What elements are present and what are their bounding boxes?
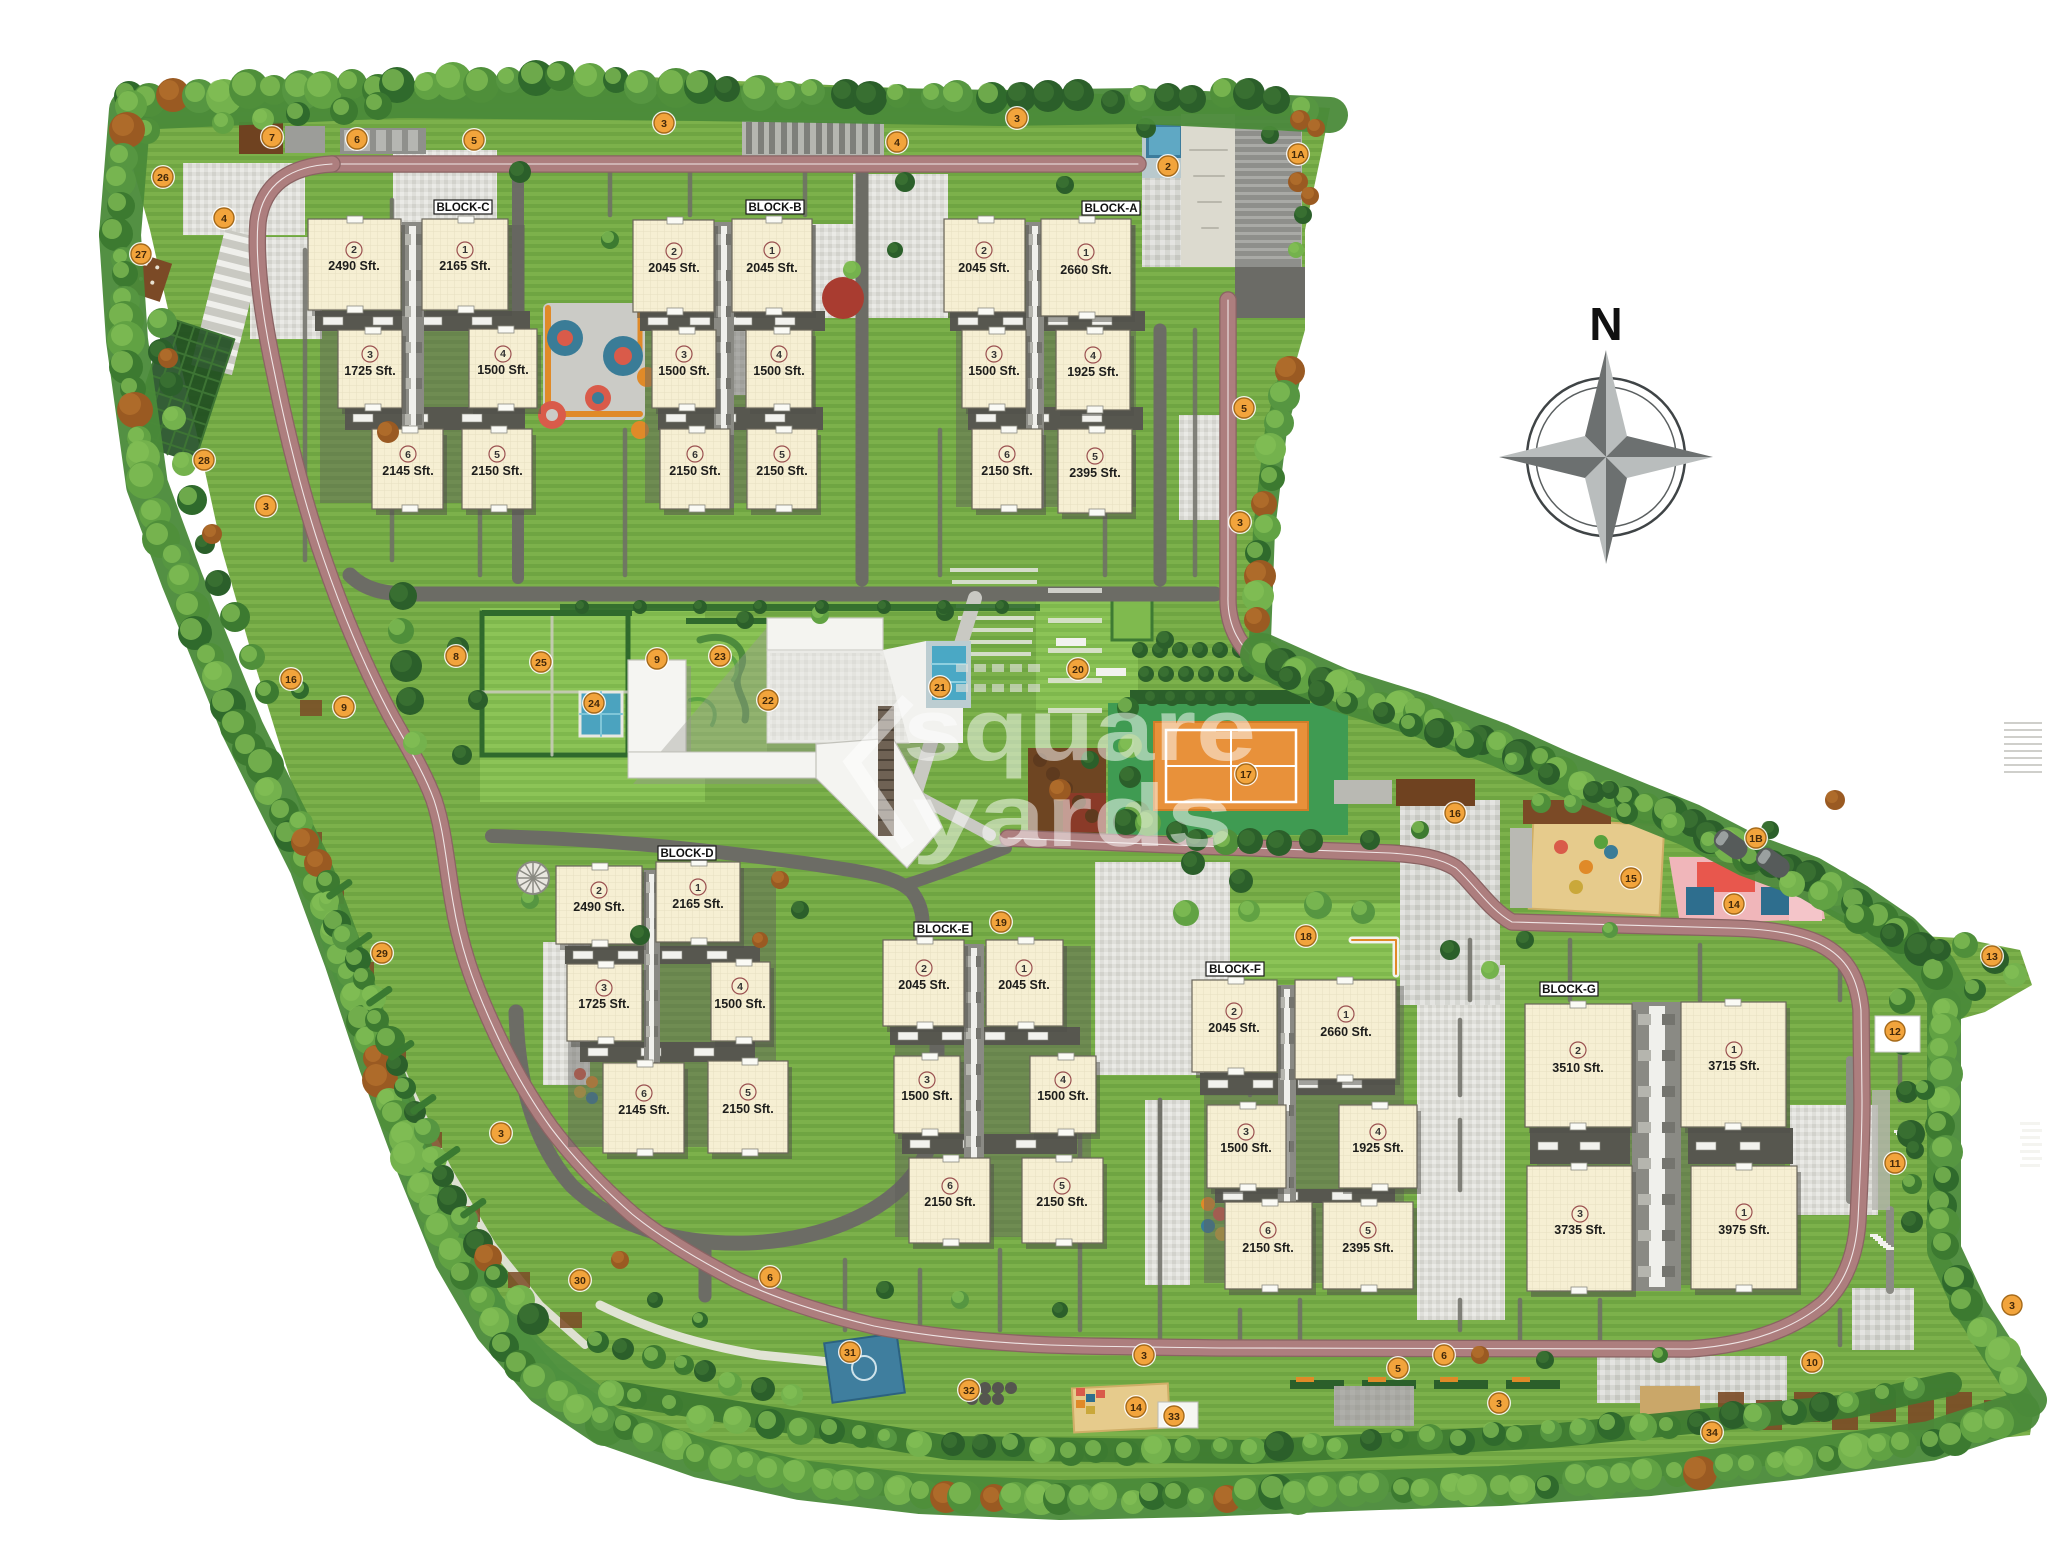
svg-text:6: 6 xyxy=(1265,1225,1271,1237)
svg-text:15: 15 xyxy=(1625,873,1637,885)
svg-text:2: 2 xyxy=(671,246,677,258)
svg-text:12: 12 xyxy=(1889,1026,1901,1038)
svg-text:yards: yards xyxy=(912,766,1233,865)
svg-text:BLOCK-F: BLOCK-F xyxy=(1209,964,1261,976)
svg-text:10: 10 xyxy=(1806,1357,1818,1369)
svg-text:6: 6 xyxy=(354,134,360,146)
svg-text:3: 3 xyxy=(263,501,269,513)
svg-text:31: 31 xyxy=(844,1347,856,1359)
svg-text:5: 5 xyxy=(1365,1225,1371,1237)
svg-text:2150 Sft.: 2150 Sft. xyxy=(1036,1195,1087,1209)
svg-text:2150 Sft.: 2150 Sft. xyxy=(1242,1241,1293,1255)
svg-text:2150 Sft.: 2150 Sft. xyxy=(756,464,807,478)
svg-text:27: 27 xyxy=(135,249,147,261)
svg-text:1: 1 xyxy=(1343,1009,1349,1021)
svg-text:5: 5 xyxy=(494,449,500,461)
svg-text:5: 5 xyxy=(1395,1363,1401,1375)
svg-text:5: 5 xyxy=(471,135,477,147)
svg-text:2660 Sft.: 2660 Sft. xyxy=(1320,1025,1371,1039)
svg-text:2395 Sft.: 2395 Sft. xyxy=(1069,466,1120,480)
svg-text:BLOCK-C: BLOCK-C xyxy=(436,202,489,214)
svg-text:20: 20 xyxy=(1072,664,1084,676)
svg-text:4: 4 xyxy=(737,981,743,993)
svg-text:18: 18 xyxy=(1300,931,1312,943)
svg-text:24: 24 xyxy=(588,698,600,710)
svg-text:3: 3 xyxy=(924,1074,930,1086)
svg-text:1500 Sft.: 1500 Sft. xyxy=(1037,1089,1088,1103)
svg-text:13: 13 xyxy=(1986,951,1998,963)
svg-text:2660 Sft.: 2660 Sft. xyxy=(1060,263,1111,277)
svg-text:1: 1 xyxy=(1021,963,1027,975)
svg-text:2490 Sft.: 2490 Sft. xyxy=(573,900,624,914)
svg-text:4: 4 xyxy=(500,348,506,360)
svg-text:2: 2 xyxy=(921,963,927,975)
svg-text:32: 32 xyxy=(963,1385,975,1397)
svg-text:23: 23 xyxy=(714,651,726,663)
svg-text:2045 Sft.: 2045 Sft. xyxy=(898,978,949,992)
svg-text:25: 25 xyxy=(535,657,547,669)
svg-text:3: 3 xyxy=(681,349,687,361)
svg-text:3: 3 xyxy=(367,349,373,361)
svg-text:11: 11 xyxy=(1889,1158,1900,1170)
svg-text:2145 Sft.: 2145 Sft. xyxy=(618,1103,669,1117)
svg-text:1: 1 xyxy=(1741,1207,1747,1219)
svg-text:BLOCK-D: BLOCK-D xyxy=(660,848,713,860)
svg-text:3: 3 xyxy=(498,1128,504,1140)
svg-text:2: 2 xyxy=(1575,1045,1581,1057)
svg-text:3735 Sft.: 3735 Sft. xyxy=(1554,1223,1605,1237)
svg-text:2: 2 xyxy=(1231,1006,1237,1018)
svg-text:6: 6 xyxy=(641,1088,647,1100)
svg-text:3: 3 xyxy=(1496,1398,1502,1410)
svg-text:2395 Sft.: 2395 Sft. xyxy=(1342,1241,1393,1255)
svg-text:9: 9 xyxy=(341,702,347,714)
svg-text:3: 3 xyxy=(661,118,667,130)
svg-text:BLOCK-B: BLOCK-B xyxy=(748,202,801,214)
svg-text:30: 30 xyxy=(574,1275,586,1287)
svg-text:2150 Sft.: 2150 Sft. xyxy=(669,464,720,478)
svg-text:6: 6 xyxy=(405,449,411,461)
svg-text:4: 4 xyxy=(776,349,782,361)
svg-text:3: 3 xyxy=(1237,517,1243,529)
svg-text:2045 Sft.: 2045 Sft. xyxy=(998,978,1049,992)
svg-text:3: 3 xyxy=(991,349,997,361)
svg-text:2150 Sft.: 2150 Sft. xyxy=(471,464,522,478)
svg-text:6: 6 xyxy=(1004,449,1010,461)
svg-text:2045 Sft.: 2045 Sft. xyxy=(1208,1021,1259,1035)
svg-text:1500 Sft.: 1500 Sft. xyxy=(658,364,709,378)
svg-text:4: 4 xyxy=(1060,1074,1066,1086)
svg-text:BLOCK-A: BLOCK-A xyxy=(1084,203,1137,215)
svg-text:2: 2 xyxy=(1165,161,1171,173)
svg-text:4: 4 xyxy=(221,213,227,225)
svg-text:6: 6 xyxy=(692,449,698,461)
svg-text:3: 3 xyxy=(1243,1126,1249,1138)
svg-text:BLOCK-E: BLOCK-E xyxy=(917,924,970,936)
svg-text:22: 22 xyxy=(762,695,774,707)
svg-text:2145 Sft.: 2145 Sft. xyxy=(382,464,433,478)
svg-text:1925 Sft.: 1925 Sft. xyxy=(1067,365,1118,379)
svg-text:1: 1 xyxy=(1083,247,1089,259)
svg-text:4: 4 xyxy=(894,137,900,149)
svg-text:2165 Sft.: 2165 Sft. xyxy=(672,897,723,911)
svg-text:1725 Sft.: 1725 Sft. xyxy=(344,364,395,378)
svg-text:1: 1 xyxy=(462,244,468,256)
svg-text:6: 6 xyxy=(947,1180,953,1192)
svg-text:1500 Sft.: 1500 Sft. xyxy=(753,364,804,378)
svg-text:3: 3 xyxy=(2009,1300,2015,1312)
svg-text:2150 Sft.: 2150 Sft. xyxy=(924,1195,975,1209)
svg-text:3: 3 xyxy=(601,982,607,994)
svg-text:2150 Sft.: 2150 Sft. xyxy=(981,464,1032,478)
svg-text:1500 Sft.: 1500 Sft. xyxy=(477,363,528,377)
svg-text:1500 Sft.: 1500 Sft. xyxy=(714,997,765,1011)
svg-text:8: 8 xyxy=(453,651,459,663)
svg-text:3975 Sft.: 3975 Sft. xyxy=(1718,1223,1769,1237)
svg-text:29: 29 xyxy=(376,948,388,960)
svg-text:5: 5 xyxy=(1241,403,1247,415)
svg-text:1500 Sft.: 1500 Sft. xyxy=(901,1089,952,1103)
svg-text:2165 Sft.: 2165 Sft. xyxy=(439,259,490,273)
svg-text:2: 2 xyxy=(351,244,357,256)
svg-text:28: 28 xyxy=(198,455,210,467)
svg-text:14: 14 xyxy=(1728,899,1740,911)
svg-text:2045 Sft.: 2045 Sft. xyxy=(958,261,1009,275)
svg-text:6: 6 xyxy=(1441,1350,1447,1362)
svg-text:2045 Sft.: 2045 Sft. xyxy=(746,261,797,275)
svg-text:1725 Sft.: 1725 Sft. xyxy=(578,997,629,1011)
svg-text:16: 16 xyxy=(285,674,297,686)
svg-text:1: 1 xyxy=(769,245,775,257)
svg-text:6: 6 xyxy=(767,1272,773,1284)
svg-text:3: 3 xyxy=(1014,113,1020,125)
svg-text:33: 33 xyxy=(1168,1411,1180,1423)
svg-text:2045 Sft.: 2045 Sft. xyxy=(648,261,699,275)
svg-text:4: 4 xyxy=(1090,350,1096,362)
svg-text:1A: 1A xyxy=(1291,149,1305,161)
svg-text:16: 16 xyxy=(1449,808,1461,820)
svg-text:9: 9 xyxy=(654,654,660,666)
svg-text:7: 7 xyxy=(269,132,275,144)
svg-text:3715 Sft.: 3715 Sft. xyxy=(1708,1059,1759,1073)
svg-text:3: 3 xyxy=(1577,1208,1583,1220)
svg-text:14: 14 xyxy=(1130,1402,1142,1414)
svg-text:5: 5 xyxy=(745,1087,751,1099)
svg-text:1: 1 xyxy=(1731,1044,1737,1056)
svg-text:3: 3 xyxy=(1141,1350,1147,1362)
svg-text:2490 Sft.: 2490 Sft. xyxy=(328,259,379,273)
svg-text:1B: 1B xyxy=(1749,833,1763,845)
svg-text:4: 4 xyxy=(1375,1126,1381,1138)
svg-text:1500 Sft.: 1500 Sft. xyxy=(1220,1141,1271,1155)
svg-text:19: 19 xyxy=(995,917,1007,929)
svg-text:2150 Sft.: 2150 Sft. xyxy=(722,1102,773,1116)
svg-text:N: N xyxy=(1589,298,1622,350)
svg-text:1: 1 xyxy=(695,882,701,894)
svg-text:square: square xyxy=(903,680,1256,779)
svg-text:5: 5 xyxy=(779,449,785,461)
svg-text:3510 Sft.: 3510 Sft. xyxy=(1552,1061,1603,1075)
svg-text:5: 5 xyxy=(1092,451,1098,463)
svg-text:5: 5 xyxy=(1059,1180,1065,1192)
svg-text:34: 34 xyxy=(1706,1427,1718,1439)
svg-text:1500 Sft.: 1500 Sft. xyxy=(968,364,1019,378)
svg-text:2: 2 xyxy=(596,885,602,897)
svg-text:1925 Sft.: 1925 Sft. xyxy=(1352,1141,1403,1155)
svg-text:BLOCK-G: BLOCK-G xyxy=(1542,984,1596,996)
svg-text:26: 26 xyxy=(157,172,169,184)
svg-text:2: 2 xyxy=(981,245,987,257)
